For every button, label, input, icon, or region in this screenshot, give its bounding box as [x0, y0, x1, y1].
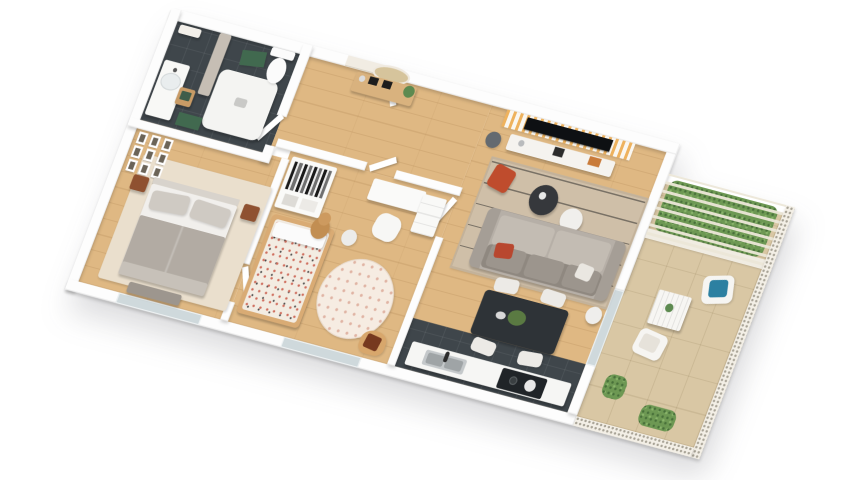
teal-cushion [708, 280, 729, 298]
apartment-plan [65, 8, 812, 461]
floorplan-render [0, 0, 850, 480]
bath-mat-1 [239, 50, 267, 68]
sofa-pillow-red [493, 242, 515, 259]
